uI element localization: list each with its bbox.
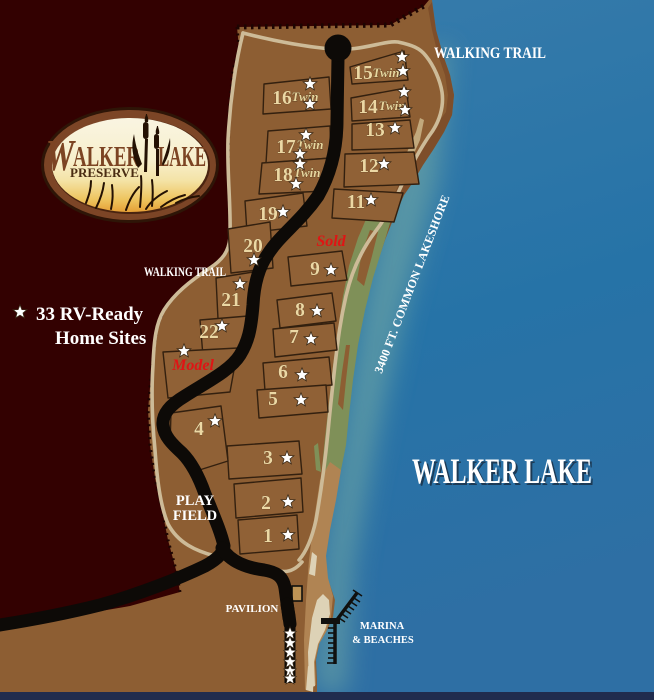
svg-text:19: 19	[258, 204, 278, 225]
svg-text:MARINA: MARINA	[360, 621, 405, 632]
svg-text:4: 4	[194, 419, 204, 440]
svg-text:3: 3	[263, 448, 273, 469]
svg-text:5: 5	[268, 389, 278, 410]
svg-text:9: 9	[310, 259, 320, 280]
svg-text:12: 12	[359, 156, 379, 177]
svg-text:21: 21	[221, 290, 241, 311]
svg-text:8: 8	[295, 300, 305, 321]
svg-text:PAVILION: PAVILION	[226, 603, 279, 615]
svg-text:13: 13	[365, 120, 385, 141]
svg-text:33 RV-Ready: 33 RV-Ready	[36, 304, 144, 325]
svg-text:1: 1	[263, 526, 273, 547]
svg-text:14: 14	[358, 97, 378, 118]
svg-text:PLAY: PLAY	[176, 493, 215, 509]
svg-text:11: 11	[347, 192, 365, 213]
svg-text:& BEACHES: & BEACHES	[352, 635, 414, 646]
svg-text:FIELD: FIELD	[173, 508, 217, 524]
svg-text:17: 17	[276, 137, 296, 158]
svg-text:WALKING TRAIL: WALKING TRAIL	[434, 45, 546, 62]
svg-text:Home Sites: Home Sites	[55, 328, 146, 349]
svg-text:7: 7	[289, 327, 299, 348]
svg-text:2: 2	[261, 493, 271, 514]
svg-text:Sold: Sold	[316, 233, 346, 250]
svg-text:WALKING TRAIL: WALKING TRAIL	[144, 264, 226, 279]
svg-text:16: 16	[272, 88, 292, 109]
svg-text:WALKER LAKE: WALKER LAKE	[412, 451, 592, 491]
svg-text:Twin: Twin	[373, 65, 400, 80]
svg-text:20: 20	[243, 236, 263, 257]
svg-text:6: 6	[278, 362, 288, 383]
svg-text:22: 22	[199, 322, 219, 343]
svg-text:15: 15	[353, 63, 373, 84]
svg-text:PRESERVE: PRESERVE	[70, 166, 139, 180]
svg-text:Model: Model	[171, 357, 214, 374]
